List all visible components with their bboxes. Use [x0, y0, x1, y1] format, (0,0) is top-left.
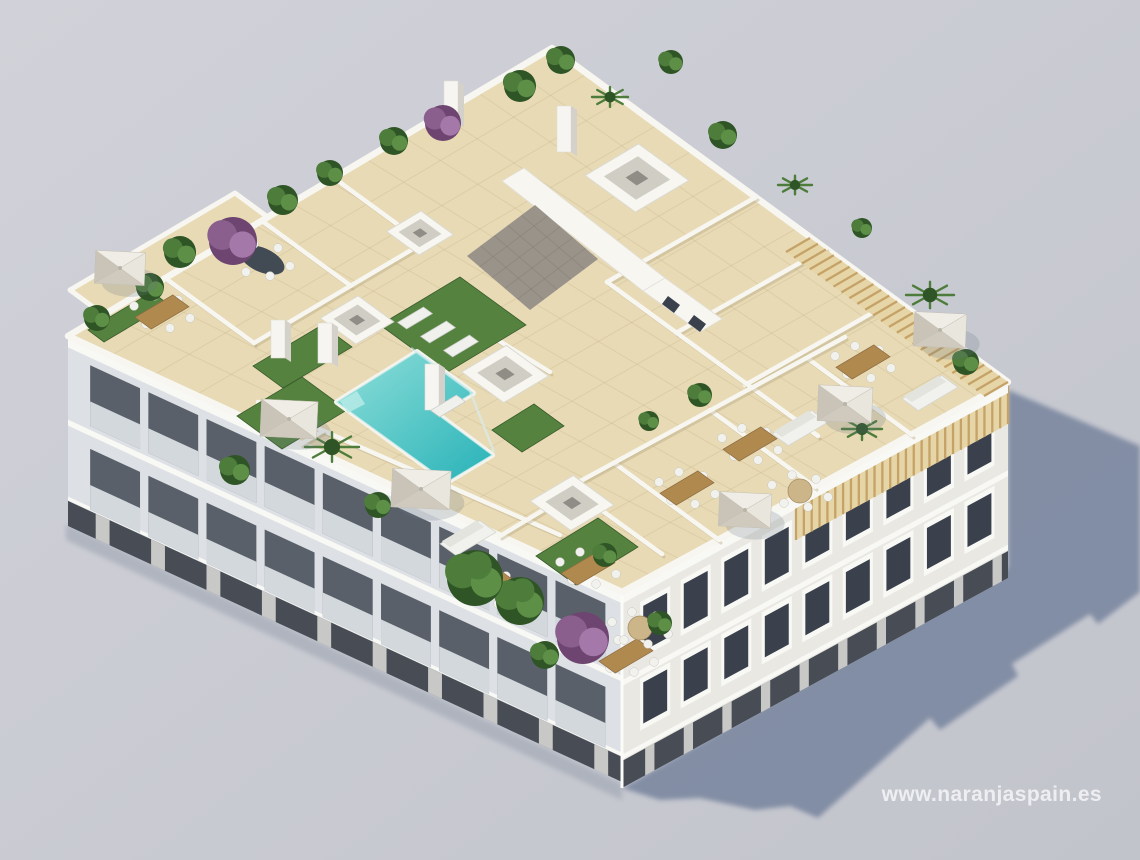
chair — [711, 490, 720, 499]
parasol-pole — [743, 508, 747, 512]
pillar-front — [271, 320, 285, 358]
chair — [130, 302, 139, 311]
parasol-pole — [419, 487, 423, 491]
chair — [286, 262, 295, 271]
base-pier — [684, 722, 693, 754]
foliage — [281, 194, 298, 211]
parasol-pole — [843, 402, 847, 406]
chair — [824, 493, 833, 502]
chair — [608, 618, 617, 627]
chair — [718, 434, 727, 443]
foliage — [518, 80, 536, 98]
chair — [780, 499, 789, 508]
pillar-side — [571, 106, 577, 156]
chair — [774, 446, 783, 455]
chair — [675, 468, 684, 477]
watermark-url: www.naranjaspain.es — [882, 783, 1102, 807]
render-image: www.naranjaspain.es — [0, 0, 1140, 860]
base-pier — [993, 554, 1002, 586]
foliage — [440, 116, 460, 136]
pillar-side — [332, 323, 338, 367]
foliage — [543, 649, 558, 664]
parasol-pole — [287, 417, 291, 421]
chair — [812, 475, 821, 484]
base-pier — [838, 638, 847, 670]
foliage — [669, 57, 682, 70]
pillar-front — [425, 364, 439, 410]
pillar-side — [285, 320, 291, 362]
chair — [788, 471, 797, 480]
foliage — [95, 313, 109, 327]
chair — [691, 500, 700, 509]
foliage — [464, 551, 492, 579]
chair — [655, 478, 664, 487]
round-table — [788, 479, 812, 503]
foliage — [648, 417, 659, 428]
chair — [644, 640, 653, 649]
building-render — [0, 0, 1140, 860]
palm-tree — [906, 282, 954, 308]
base-pier — [915, 596, 924, 628]
chair — [186, 314, 195, 323]
base-pier — [761, 680, 770, 712]
palm-crown — [790, 180, 800, 190]
chair — [754, 456, 763, 465]
chair — [576, 548, 585, 557]
chair — [242, 268, 251, 277]
chair — [274, 244, 283, 253]
base-pier — [645, 743, 654, 775]
chair — [612, 570, 621, 579]
base-pier — [722, 701, 731, 733]
chair — [620, 636, 629, 645]
base-pier — [877, 617, 886, 649]
palm-tree — [778, 176, 812, 195]
parasol-pole — [118, 266, 122, 270]
foliage — [392, 135, 407, 150]
palm-crown — [605, 92, 616, 103]
chair — [851, 342, 860, 351]
base-pier — [954, 575, 963, 607]
chair — [556, 558, 565, 567]
chair — [628, 608, 637, 617]
pillar — [318, 323, 338, 367]
chair — [867, 374, 876, 383]
chair — [592, 580, 601, 589]
chair — [768, 481, 777, 490]
chair — [166, 324, 175, 333]
palm-crown — [923, 288, 937, 302]
chair — [650, 658, 659, 667]
foliage — [579, 628, 608, 657]
foliage — [229, 231, 255, 257]
chair — [887, 364, 896, 373]
pillar — [557, 106, 577, 156]
foliage — [559, 54, 574, 69]
chair — [630, 668, 639, 677]
chair — [831, 352, 840, 361]
foliage — [721, 129, 736, 144]
chair — [738, 424, 747, 433]
foliage — [964, 357, 978, 371]
chair — [266, 272, 275, 281]
chair — [804, 503, 813, 512]
palm-tree — [592, 87, 628, 107]
pillar-front — [318, 323, 332, 363]
pillar — [271, 320, 291, 362]
foliage — [658, 618, 671, 631]
foliage — [178, 246, 196, 264]
foliage — [603, 550, 616, 563]
base-pier — [800, 659, 809, 691]
foliage — [233, 464, 250, 481]
foliage — [698, 390, 711, 403]
foliage — [376, 500, 390, 514]
foliage — [328, 168, 342, 182]
parasol-pole — [938, 328, 942, 332]
pillar-front — [557, 106, 571, 152]
foliage — [861, 224, 872, 235]
foliage — [510, 578, 534, 602]
